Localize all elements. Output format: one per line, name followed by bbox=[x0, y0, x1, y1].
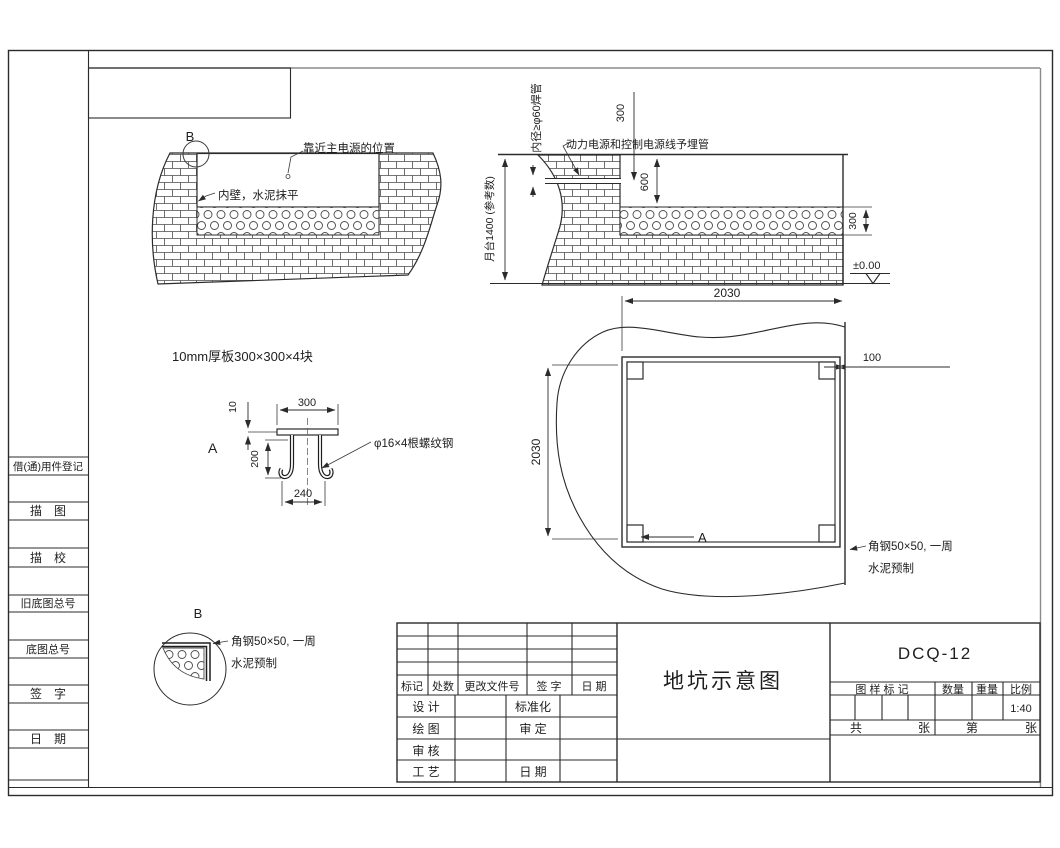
note-inner-wall: 内壁，水泥抹平 bbox=[218, 188, 299, 202]
detail-a-anchor-plate: 10mm厚板300×300×4块 10 300 200 240 A bbox=[172, 349, 453, 507]
row-process: 工 艺 bbox=[412, 765, 439, 779]
note-angle-steel: 角钢50×50, 一周 bbox=[868, 540, 953, 553]
top-left-register-box bbox=[89, 68, 291, 118]
sidebar-item-date: 日 期 bbox=[30, 732, 66, 746]
note-precast-concrete: 水泥预制 bbox=[868, 562, 914, 575]
sidebar-item-old-base-no: 旧底图总号 bbox=[21, 596, 76, 610]
level-symbol bbox=[866, 274, 880, 284]
note-precast-concrete: 水泥预制 bbox=[231, 657, 277, 670]
scale-header: 比例 bbox=[1010, 682, 1032, 696]
drawing-info-table: DCQ-12 图 样 标 记 数量 重量 比例 1:40 共 张 第 张 bbox=[830, 644, 1040, 735]
pit-cross-section-right: 内径≥φ60焊管 动力电源和控制电源线予埋管 300 600 月台1400 (参… bbox=[483, 83, 890, 285]
note-rebar: φ16×4根螺纹钢 bbox=[374, 436, 453, 450]
dim-600: 600 bbox=[639, 173, 651, 191]
sidebar-item-signature: 签 字 bbox=[30, 686, 66, 701]
pit-frame-outer bbox=[622, 357, 840, 547]
corner-bracket-bl bbox=[627, 525, 643, 542]
corner-bracket-br bbox=[819, 525, 835, 542]
sidebar-label-column: 借(通)用件登记 描 图 描 校 旧底图总号 底图总号 签 字 日 期 bbox=[9, 457, 89, 780]
mark-header: 图 样 标 记 bbox=[855, 682, 908, 696]
drawing-sheet: 借(通)用件登记 描 图 描 校 旧底图总号 底图总号 签 字 日 期 B 靠近… bbox=[0, 0, 1060, 848]
detail-a-caption: 10mm厚板300×300×4块 bbox=[172, 349, 313, 364]
pit-cross-section-left: B 靠近主电源的位置 内壁，水泥抹平 bbox=[152, 129, 441, 284]
pit-frame-inner bbox=[627, 362, 835, 542]
level-value: ±0.00 bbox=[853, 260, 880, 272]
dim-300-plate: 300 bbox=[298, 397, 316, 409]
note-near-main-power: 靠近主电源的位置 bbox=[303, 141, 395, 155]
weight-header: 重量 bbox=[976, 682, 998, 696]
gravel-layer bbox=[197, 207, 379, 235]
plan-a-label: A bbox=[698, 530, 707, 545]
dim-200: 200 bbox=[249, 450, 261, 468]
dim-100: 100 bbox=[863, 352, 881, 364]
detail-b-label: B bbox=[194, 606, 203, 621]
dim-10: 10 bbox=[227, 401, 239, 413]
note-angle-steel: 角钢50×50, 一周 bbox=[231, 635, 316, 648]
gravel-layer bbox=[620, 207, 843, 235]
change-col-file-no: 更改文件号 bbox=[465, 679, 520, 693]
change-col-count: 处数 bbox=[432, 680, 454, 693]
corner-bracket-tr bbox=[819, 362, 835, 379]
corner-bracket-tl bbox=[627, 362, 643, 379]
sidebar-item-base-no: 底图总号 bbox=[26, 642, 70, 656]
callout-b-label: B bbox=[186, 129, 195, 144]
cad-canvas: 借(通)用件登记 描 图 描 校 旧底图总号 底图总号 签 字 日 期 B 靠近… bbox=[0, 0, 1060, 848]
sheet-total-label: 共 bbox=[850, 721, 862, 735]
row-approved: 审 定 bbox=[519, 721, 546, 736]
row-drawn: 绘 图 bbox=[412, 721, 439, 736]
scale-value: 1:40 bbox=[1010, 703, 1031, 715]
row-date: 日 期 bbox=[519, 765, 546, 779]
dim-platform-1400: 月台1400 (参考数) bbox=[483, 176, 496, 262]
sheet-unit-2: 张 bbox=[1025, 721, 1037, 735]
dim-2030-width: 2030 bbox=[714, 286, 741, 300]
change-col-signature: 签 字 bbox=[536, 679, 561, 693]
pit-plan-view: 2030 2030 100 A 角钢50×50, 一周 水泥预制 bbox=[529, 286, 953, 597]
sidebar-item-borrowed-parts: 借(通)用件登记 bbox=[13, 460, 83, 473]
dim-300-top: 300 bbox=[615, 104, 627, 122]
sidebar-item-tracing-check: 描 校 bbox=[30, 550, 66, 565]
change-record-table: 标记 处数 更改文件号 签 字 日 期 设 计 标准化 绘 图 审 定 审 核 … bbox=[397, 623, 617, 782]
anchor-bars bbox=[280, 435, 331, 477]
sheet-no-label: 第 bbox=[966, 721, 978, 735]
row-checked: 审 核 bbox=[412, 743, 439, 758]
sheet-unit-1: 张 bbox=[918, 721, 930, 735]
dim-2030-height: 2030 bbox=[529, 438, 543, 465]
qty-header: 数量 bbox=[942, 683, 964, 696]
drawing-title: 地坑示意图 bbox=[663, 670, 783, 693]
section-a-label: A bbox=[208, 440, 218, 456]
break-line bbox=[556, 323, 845, 597]
change-col-date: 日 期 bbox=[581, 680, 606, 693]
drawing-number: DCQ-12 bbox=[898, 644, 972, 663]
note-pipe-diameter: 内径≥φ60焊管 bbox=[529, 83, 543, 152]
dim-300-right: 300 bbox=[847, 212, 859, 230]
precast-concrete-section bbox=[163, 648, 204, 679]
row-standardization: 标准化 bbox=[515, 700, 551, 714]
title-block: 标记 处数 更改文件号 签 字 日 期 设 计 标准化 绘 图 审 定 审 核 … bbox=[397, 623, 1040, 782]
detail-b-angle-steel: B 角钢50×50, 一周 水泥预制 bbox=[154, 606, 316, 705]
note-power-conduit: 动力电源和控制电源线予埋管 bbox=[566, 137, 709, 151]
dim-240: 240 bbox=[294, 488, 312, 500]
change-col-mark: 标记 bbox=[401, 679, 423, 693]
row-design: 设 计 bbox=[412, 700, 439, 714]
sidebar-item-tracing: 描 图 bbox=[30, 504, 66, 518]
